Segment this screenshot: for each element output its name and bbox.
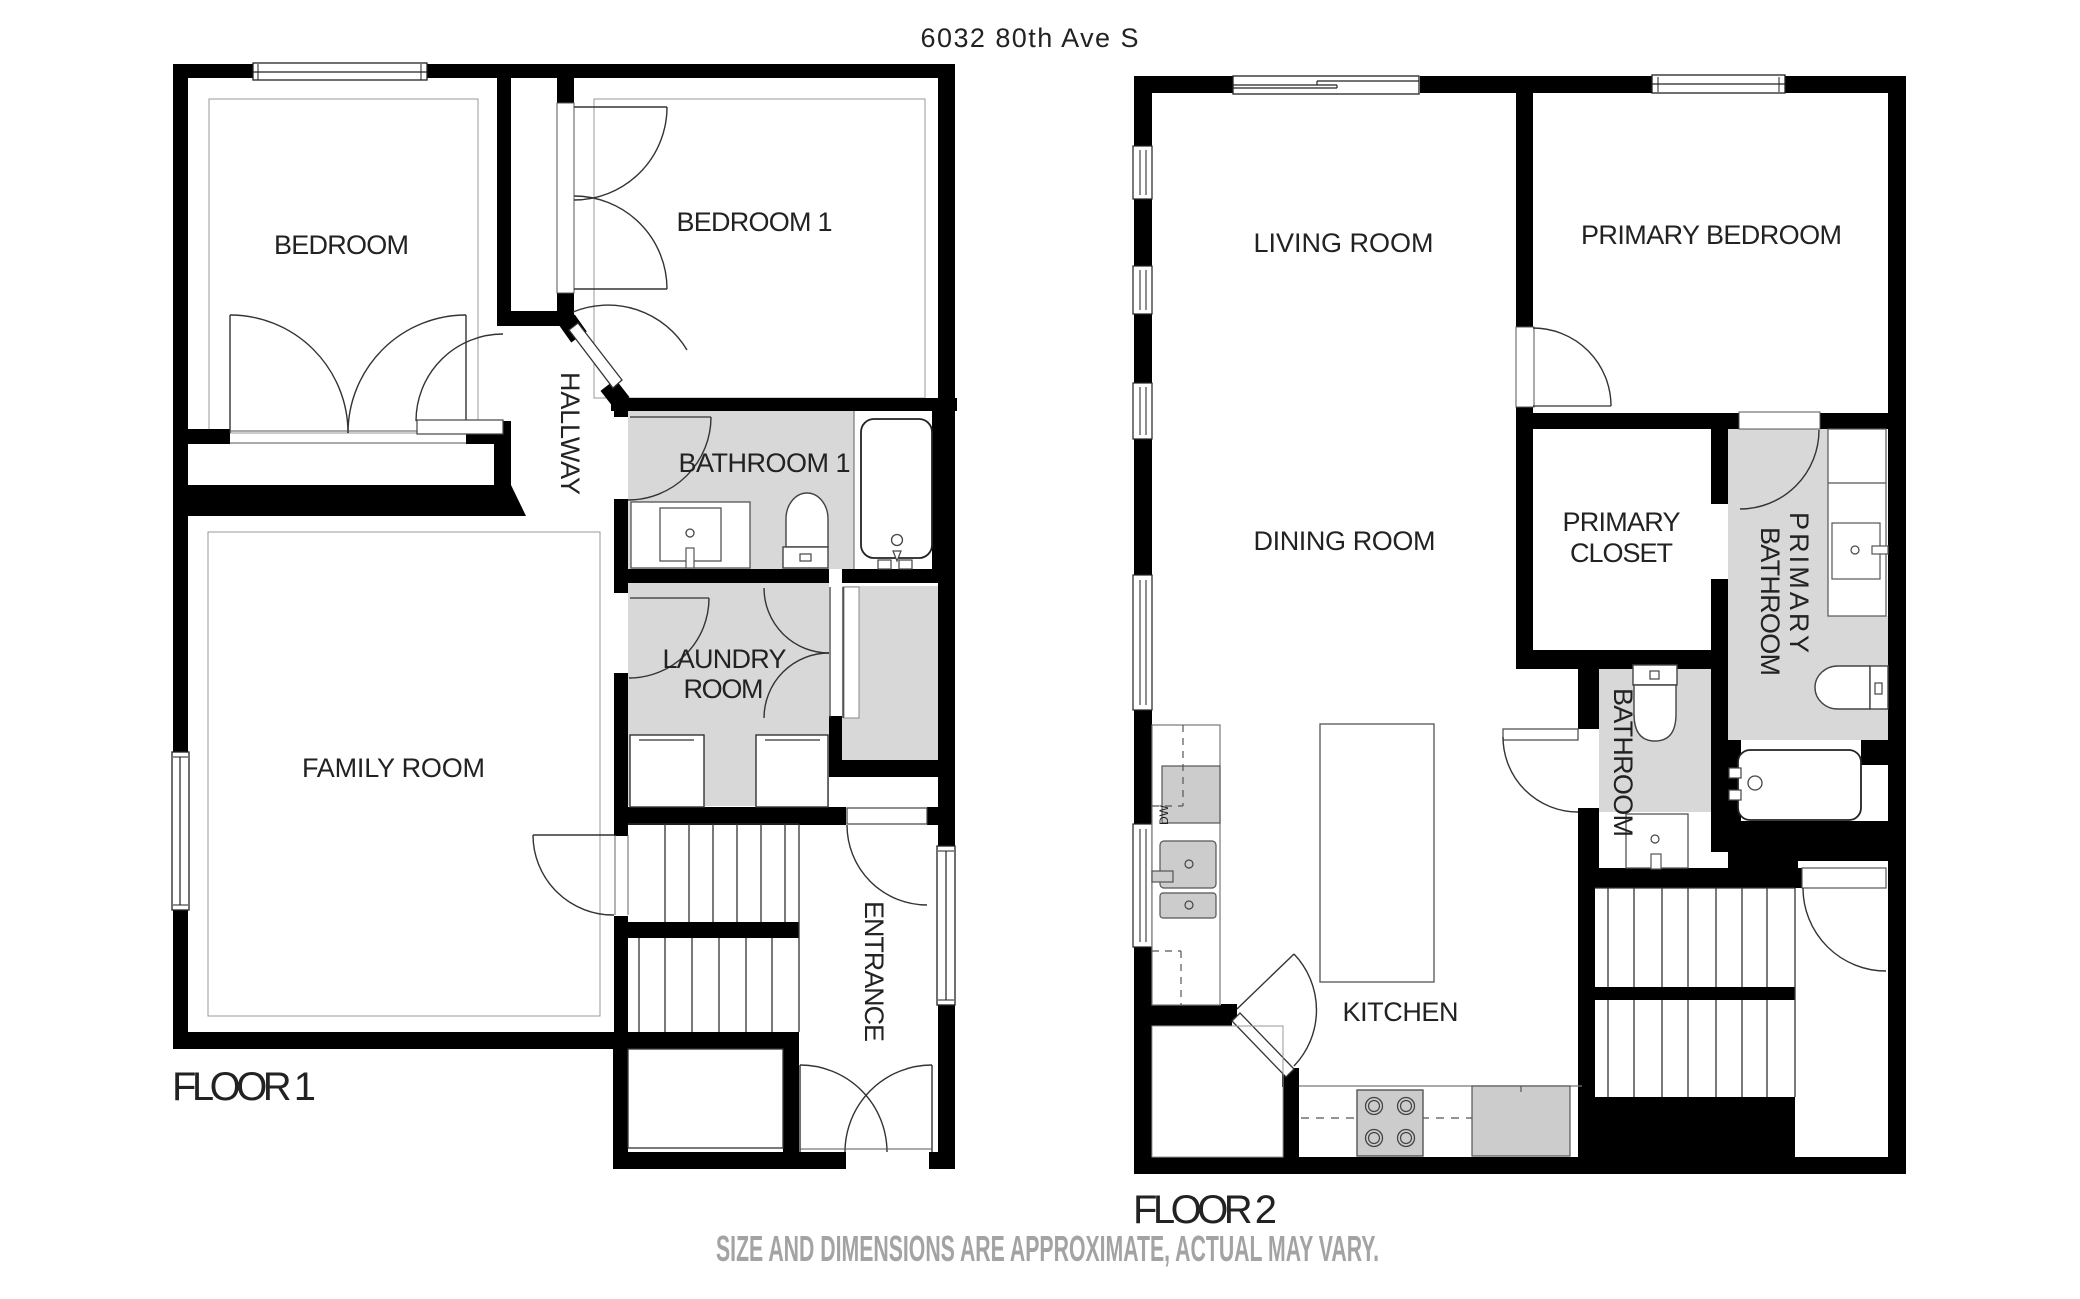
svg-text:PRIMARY: PRIMARY <box>1784 512 1814 654</box>
svg-text:ROOM: ROOM <box>684 674 765 704</box>
svg-text:FAMILY ROOM: FAMILY ROOM <box>302 753 486 783</box>
svg-text:DW: DW <box>1157 804 1171 825</box>
svg-text:PRIMARY: PRIMARY <box>1563 507 1682 537</box>
svg-text:DINING ROOM: DINING ROOM <box>1254 526 1437 556</box>
svg-text:BEDROOM: BEDROOM <box>274 230 410 260</box>
svg-text:ENTRANCE: ENTRANCE <box>859 901 889 1043</box>
svg-text:PRIMARY BEDROOM: PRIMARY BEDROOM <box>1581 220 1843 250</box>
svg-text:FLOOR 2: FLOOR 2 <box>1133 1188 1277 1232</box>
svg-text:FLOOR 1: FLOOR 1 <box>172 1065 316 1109</box>
svg-text:LIVING ROOM: LIVING ROOM <box>1254 228 1435 258</box>
svg-text:LAUNDRY: LAUNDRY <box>663 644 788 674</box>
svg-text:6032 80th Ave S: 6032 80th Ave S <box>921 23 1140 53</box>
svg-text:CLOSET: CLOSET <box>1570 538 1674 568</box>
svg-text:BEDROOM 1: BEDROOM 1 <box>677 207 834 237</box>
svg-text:BATHROOM: BATHROOM <box>1608 688 1638 838</box>
svg-text:SIZE AND DIMENSIONS ARE APPROX: SIZE AND DIMENSIONS ARE APPROXIMATE, ACT… <box>716 1228 1379 1269</box>
svg-text:BATHROOM 1: BATHROOM 1 <box>679 448 852 478</box>
svg-text:KITCHEN: KITCHEN <box>1343 997 1460 1027</box>
svg-text:HALLWAY: HALLWAY <box>555 372 585 496</box>
svg-text:BATHROOM: BATHROOM <box>1755 527 1785 677</box>
